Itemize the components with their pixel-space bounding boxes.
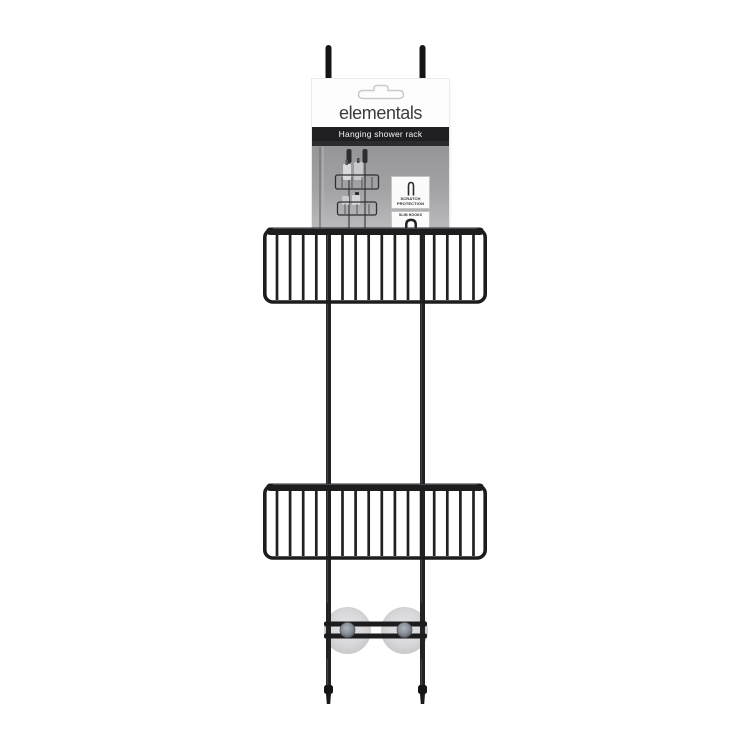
rack-front-layer xyxy=(0,0,752,752)
product-image: elementals Hanging shower rack xyxy=(0,0,752,752)
bottom-basket xyxy=(265,484,485,558)
upper-crossbar xyxy=(324,622,427,627)
lower-crossbar xyxy=(324,634,427,639)
right-suction-cup-nub xyxy=(397,623,412,638)
top-basket xyxy=(265,228,485,302)
left-suction-cup-nub xyxy=(340,623,355,638)
